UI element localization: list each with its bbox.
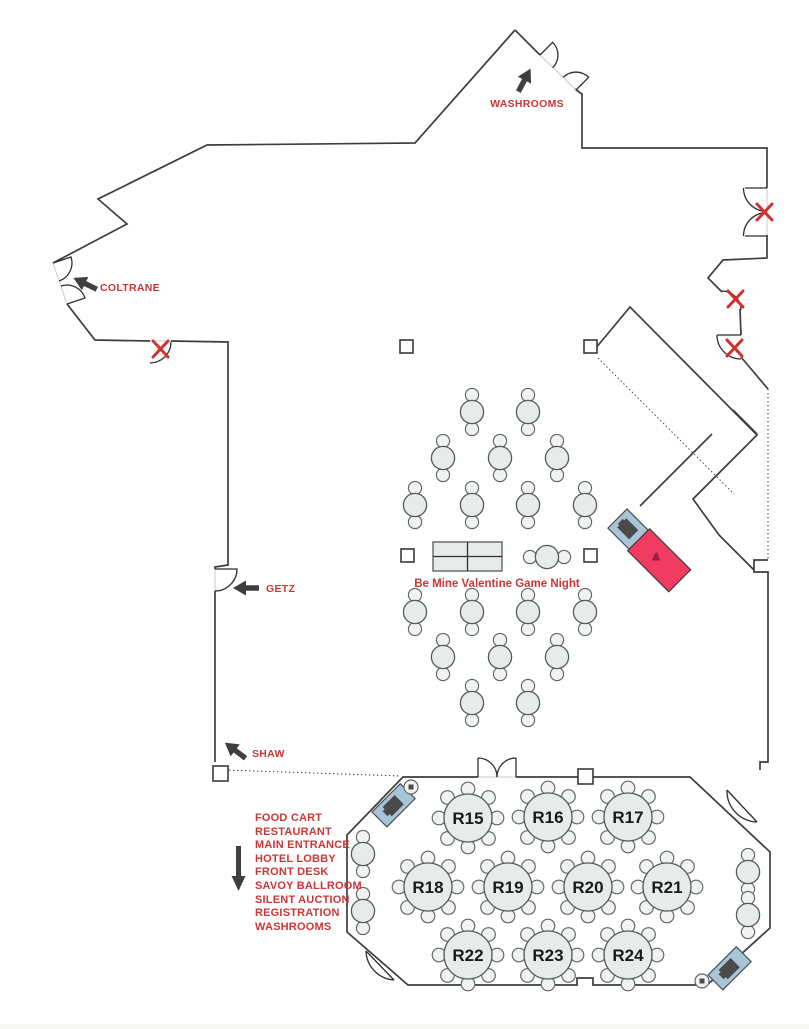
closed-door-corridor-2 <box>717 335 742 359</box>
table-label: R24 <box>612 946 644 965</box>
table-label: R23 <box>532 946 563 965</box>
table-label: R15 <box>452 809 483 828</box>
legend-item: SILENT AUCTION <box>255 894 350 906</box>
legend-item: FOOD CART <box>255 812 322 824</box>
table-r21: R21 <box>631 851 703 923</box>
table-r15: R15 <box>432 782 504 854</box>
event-title: Be Mine Valentine Game Night <box>414 578 580 590</box>
closed-door-corridor-1 <box>722 291 743 310</box>
dotted-boundary-shaw <box>225 770 401 776</box>
ballroom-door-top-right <box>727 790 757 822</box>
table-label: R16 <box>532 808 563 827</box>
washrooms-door <box>540 42 589 90</box>
table-r17: R17 <box>592 781 664 853</box>
getz-arrow-icon <box>233 581 259 596</box>
closed-double-door-right <box>744 188 773 236</box>
shaw-pointer: SHAW <box>220 737 284 765</box>
coltrane-label: COLTRANE <box>100 282 160 294</box>
legend-item: HOTEL LOBBY <box>255 853 336 865</box>
legend-item: MAIN ENTRANCE <box>255 839 350 851</box>
dotted-boundary-corridor <box>598 358 734 494</box>
table-label: R20 <box>572 878 603 897</box>
coltrane-arrow-icon <box>70 271 100 296</box>
closed-door-left <box>150 341 171 363</box>
table-label: R19 <box>492 878 523 897</box>
legend-item: RESTAURANT <box>255 826 332 838</box>
column <box>578 769 593 784</box>
table-label: R18 <box>412 878 443 897</box>
washrooms-pointer: WASHROOMS <box>490 65 564 110</box>
table-r24: R24 <box>592 919 664 991</box>
table-r23: R23 <box>512 919 584 991</box>
floor-plan-svg: Be Mine Valentine Game Night R15 <box>0 0 809 1024</box>
getz-pointer: GETZ <box>233 581 295 596</box>
legend-item: WASHROOMS <box>255 921 331 933</box>
column <box>213 766 228 781</box>
ballroom-double-door <box>478 758 516 777</box>
head-table <box>433 542 502 571</box>
legend: FOOD CART RESTAURANT MAIN ENTRANCE HOTEL… <box>232 812 362 933</box>
legend-item: FRONT DESK <box>255 866 329 878</box>
table-label: R17 <box>612 808 643 827</box>
legend-item: REGISTRATION <box>255 907 340 919</box>
legend-down-arrow-icon <box>232 846 246 891</box>
ballroom-station-top-left <box>372 780 418 827</box>
column <box>401 549 414 562</box>
legend-item: SAVOY BALLROOM <box>255 880 362 892</box>
table-label: R22 <box>452 946 483 965</box>
table-r16: R16 <box>512 781 584 853</box>
washrooms-arrow-icon <box>512 65 537 95</box>
ballroom-station-bottom-right <box>695 947 751 990</box>
hall-walls <box>53 30 768 770</box>
ballroom-door-bottom-left <box>366 951 394 980</box>
table-r20: R20 <box>552 851 624 923</box>
coltrane-pointer: COLTRANE <box>70 271 160 296</box>
table-r22: R22 <box>432 919 504 991</box>
floor-plan-page: Be Mine Valentine Game Night R15 <box>0 0 809 1024</box>
table-label: R21 <box>651 878 682 897</box>
washrooms-label: WASHROOMS <box>490 98 564 110</box>
getz-label: GETZ <box>266 583 295 595</box>
table-r18: R18 <box>392 851 464 923</box>
shaw-arrow-icon <box>220 737 250 765</box>
food-cart-station <box>606 508 690 592</box>
side-table <box>523 545 570 568</box>
column <box>584 549 597 562</box>
ballroom-round-tables: R15 R16 R17 R18 R19 R20 R21 R22 R23 R24 <box>392 781 703 991</box>
column <box>400 340 413 353</box>
column <box>584 340 597 353</box>
shaw-label: SHAW <box>252 748 285 760</box>
table-r19: R19 <box>472 851 544 923</box>
